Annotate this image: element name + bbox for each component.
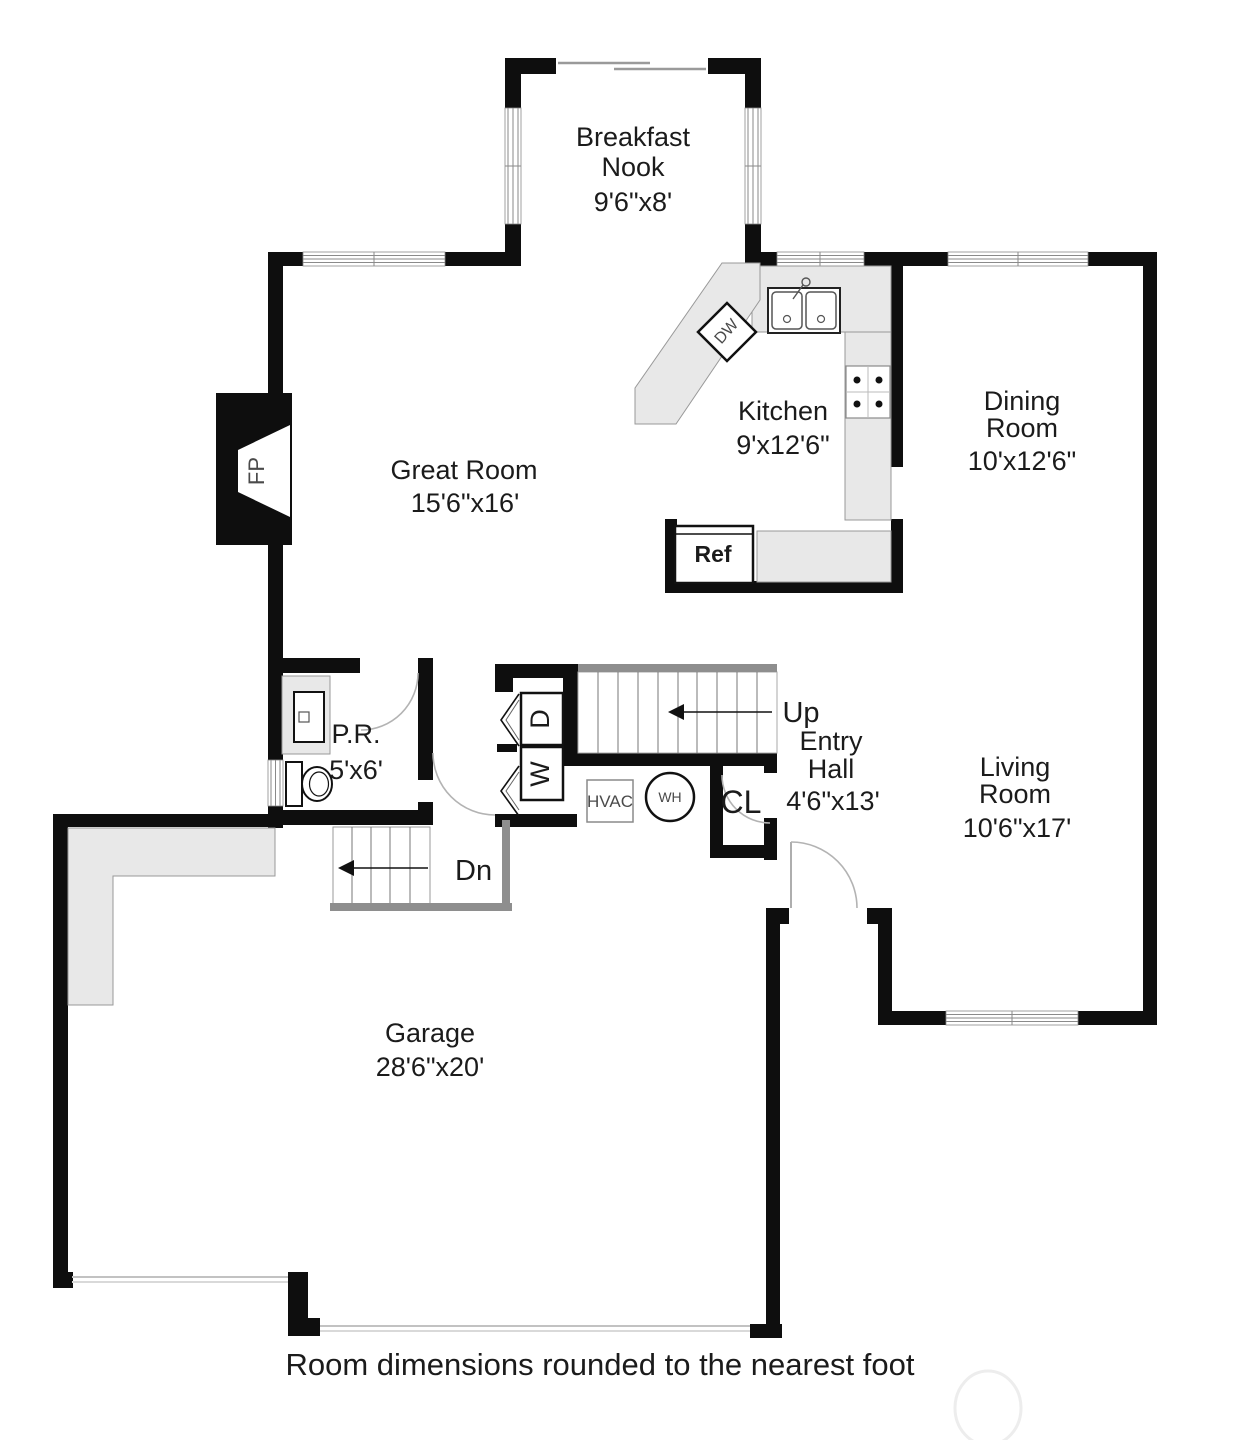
door-opening [360,658,418,673]
wall [878,908,892,1025]
window-powder-room [268,760,283,806]
room-dims: 10'x12'6" [968,446,1076,476]
garage-storage-area [68,828,275,1005]
wall [766,908,780,1338]
toilet [286,762,332,806]
closet-label: CL [721,784,762,820]
wall [764,818,777,860]
hvac-unit: HVAC [587,780,633,822]
wall [891,266,903,467]
garage-door-left [72,1277,288,1282]
wall [764,753,777,773]
front-door-opening [789,908,867,924]
room-name: Breakfast [576,122,691,152]
room-dims: 9'x12'6" [736,430,829,460]
powder-room-fixtures [282,676,332,806]
window-breakfast-right [745,108,761,224]
room-name: Kitchen [738,396,828,426]
wall [418,658,433,780]
pantry-counter [757,531,891,582]
wall [750,1324,782,1338]
dryer: D [521,693,563,745]
watermark-circle [955,1371,1021,1440]
water-heater-label: WH [658,789,681,805]
room-label-garage: Garage 28'6"x20' [376,1018,484,1082]
wall [53,1272,73,1288]
washer: W [521,747,563,800]
stairs-down: Dn [330,820,512,911]
wall [563,753,777,766]
door-arc-front-entry [791,842,857,908]
room-dims: 10'6"x17' [963,813,1071,843]
room-dims: 5'x6' [329,755,383,785]
floor-plan-page: FP [0,0,1248,1440]
stove [846,366,890,418]
refrigerator: Ref [675,526,753,583]
stairs-down-label: Dn [455,855,492,887]
bifold-doors [501,694,519,816]
sliding-door-opening [556,58,708,74]
room-name: Garage [385,1018,475,1048]
water-heater: WH [646,773,694,821]
room-label-entry-hall: Entry Hall 4'6"x13' [786,726,879,816]
room-name: Great Room [390,455,537,485]
room-name: Room [986,413,1058,443]
window-breakfast-left [505,108,521,224]
door-arc-stair-landing [433,753,495,815]
footer-note: Room dimensions rounded to the nearest f… [286,1347,915,1382]
room-name: Dining [984,386,1061,416]
window-kitchen [777,252,864,266]
window-dining [948,252,1088,266]
room-dims: 4'6"x13' [786,786,879,816]
vanity-sink [294,692,324,742]
floor-plan: FP [0,0,1248,1440]
window-great-room [303,252,445,266]
kitchen-counter [845,332,891,520]
stairs-up-label: Up [782,697,819,729]
wall [418,802,433,822]
wall [270,810,433,825]
wall [288,1272,320,1336]
stairs-up: Up [578,664,820,753]
room-dims: 15'6"x16' [411,488,519,518]
window-living-room [946,1011,1078,1025]
room-name: Living [980,752,1051,782]
washer-label: W [525,761,555,787]
stair-rail [330,903,512,911]
refrigerator-label: Ref [694,541,731,567]
wall [497,744,517,752]
room-name: Nook [601,152,665,182]
hvac-label: HVAC [587,792,633,811]
stair-rail [578,664,777,672]
sliding-door [556,58,708,74]
fireplace: FP [216,393,292,545]
room-label-powder-room: P.R. 5'x6' [329,719,383,785]
stair-rail [502,820,510,911]
room-dims: 28'6"x20' [376,1052,484,1082]
room-name: Room [979,779,1051,809]
room-label-living-room: Living Room 10'6"x17' [963,752,1071,843]
dryer-label: D [525,709,555,729]
wall [53,814,283,827]
fireplace-label: FP [244,457,269,485]
garage-door-right [320,1326,750,1331]
room-label-great-room: Great Room 15'6"x16' [390,455,537,518]
room-dims: 9'6"x8' [594,187,672,217]
room-label-breakfast-nook: Breakfast Nook 9'6"x8' [576,122,691,217]
room-label-kitchen: Kitchen 9'x12'6" [736,396,829,460]
wall [563,664,578,765]
wall [891,519,903,593]
wall [1143,252,1157,1025]
wall [53,815,68,1288]
room-label-dining-room: Dining Room 10'x12'6" [968,386,1076,476]
room-name: P.R. [331,719,380,749]
room-name: Entry [799,726,863,756]
room-name: Hall [808,754,855,784]
wall [495,664,513,692]
